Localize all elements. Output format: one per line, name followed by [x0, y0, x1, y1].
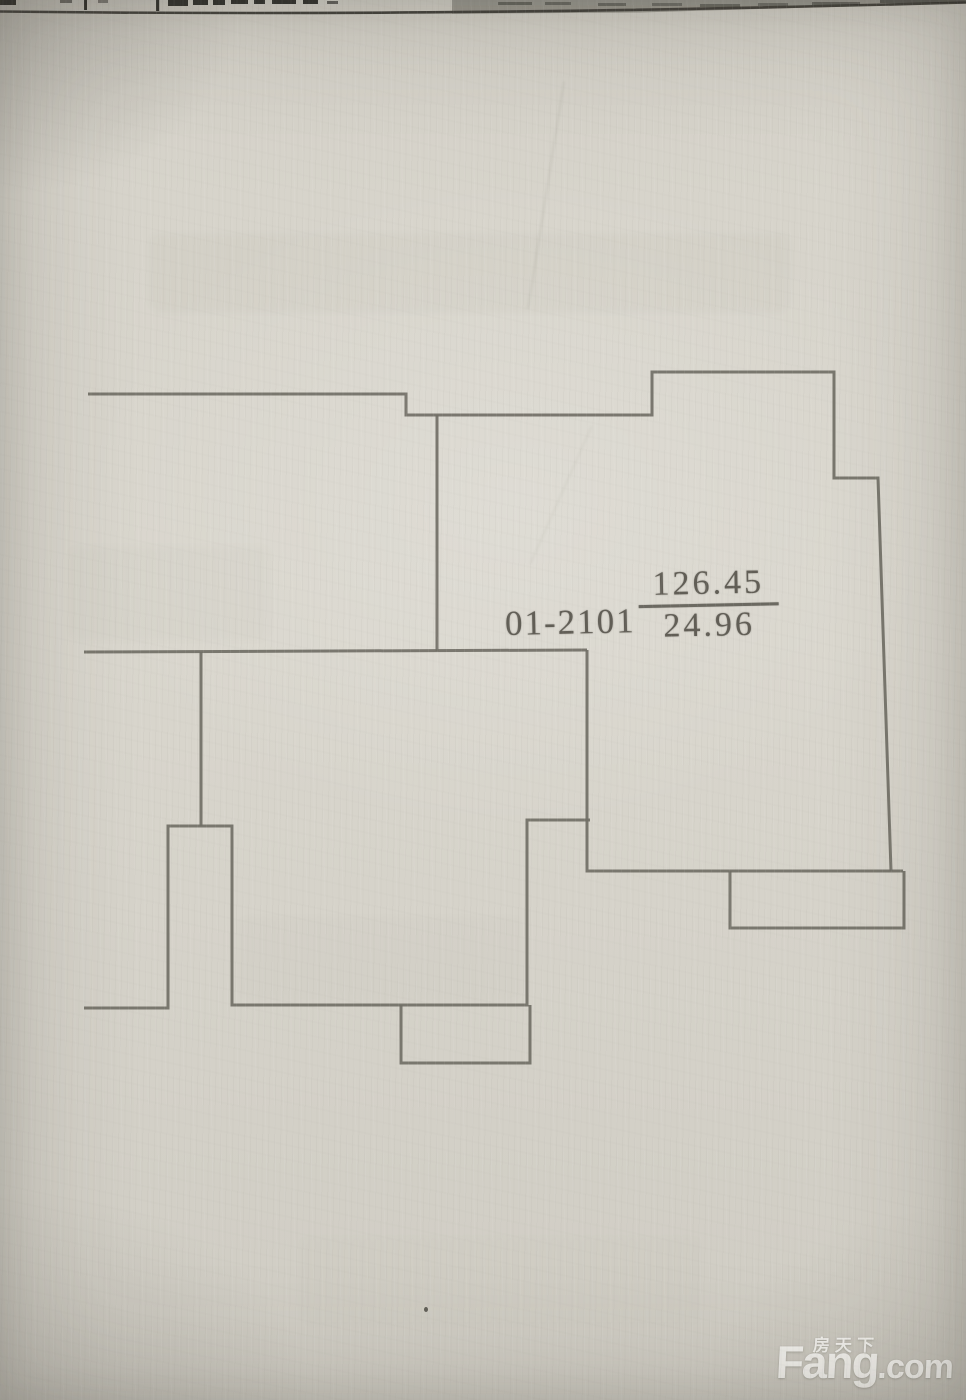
- wall-segment: [587, 650, 903, 871]
- wall-segment: [401, 1005, 530, 1063]
- watermark-logo-text: Fang.com: [775, 1335, 955, 1389]
- watermark-domain-text: .com: [877, 1348, 954, 1386]
- paper-speck: [424, 1307, 428, 1312]
- fang-watermark: 房天下 Fang.com: [774, 1329, 966, 1395]
- floorplan-svg: [0, 0, 966, 1400]
- wall-segment: [84, 650, 587, 652]
- wall-segment: [84, 820, 590, 1008]
- watermark-brand-text: Fang: [775, 1336, 880, 1388]
- wall-segment: [730, 871, 904, 928]
- floorplan-photo: 01-2101 126.45 24.96 房天下 Fang.com: [0, 0, 966, 1400]
- wall-segment: [88, 372, 891, 871]
